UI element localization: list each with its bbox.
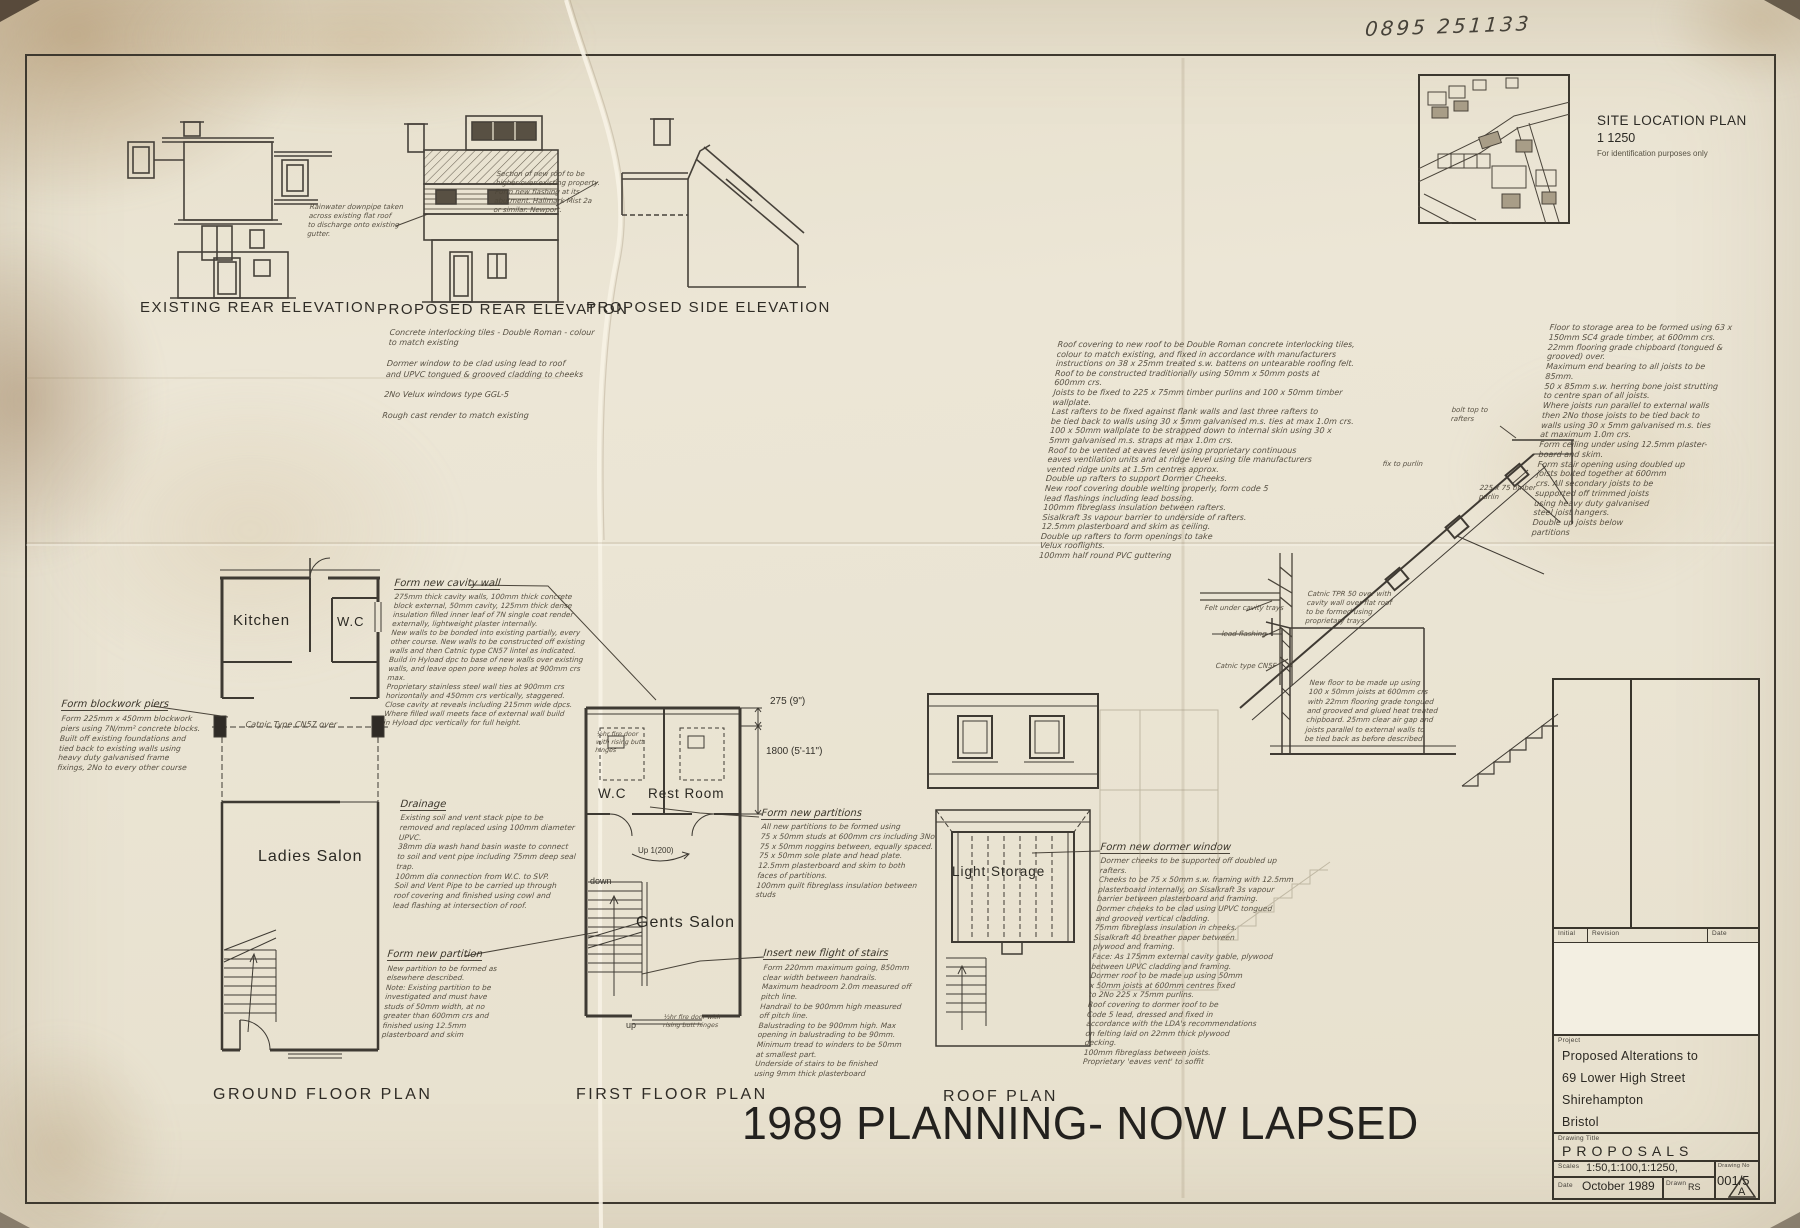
site-plan-title: SITE LOCATION PLAN: [1597, 113, 1747, 128]
date-value: October 1989: [1582, 1179, 1655, 1193]
drawing-title-label: Drawing Title: [1558, 1135, 1599, 1142]
blockwork-note-body: Form 225mm x 450mm blockwork piers using…: [57, 714, 217, 773]
project-line-4: Bristol: [1562, 1115, 1599, 1129]
ground-floor-plan-title: GROUND FLOOR PLAN: [213, 1086, 432, 1104]
title-block: Initial Revision Date Project Proposed A…: [1552, 678, 1760, 1200]
scales-value: 1:50,1:100,1:1250,: [1586, 1162, 1678, 1174]
title-block-divider: [1707, 927, 1708, 942]
fire-door-note-2: ½hr fire door with rising butt hinges: [663, 1014, 734, 1030]
project-line-3: Shirehampton: [1562, 1093, 1643, 1107]
drainage-note-body: Existing soil and vent stack pipe to be …: [392, 813, 581, 911]
title-block-divider: [1662, 1176, 1664, 1198]
svg-text:A: A: [1738, 1186, 1746, 1198]
title-block-divider: [1587, 927, 1588, 942]
proposed-rear-notes: Concrete interlocking tiles - Double Rom…: [382, 328, 660, 422]
title-block-blank-panel: [1554, 943, 1758, 1034]
blockwork-note-title: Form blockwork piers: [61, 699, 169, 711]
flashing-note: lead flashing: [1221, 630, 1297, 639]
room-label-ladies-salon: Ladies Salon: [258, 848, 363, 866]
drainage-note-title: Drainage: [400, 799, 447, 811]
stairs-note-title: Insert new flight of stairs: [763, 948, 889, 960]
room-label-light-storage: Light Storage: [952, 864, 1045, 879]
title-block-rule: [1554, 927, 1758, 929]
revision-triangle-icon: A: [1728, 1176, 1756, 1198]
room-label-wc-first: W.C: [598, 786, 627, 801]
cavity-wall-note-title: Form new cavity wall: [394, 578, 501, 590]
fire-door-note-1: ½hr fire door with rising butt hinges: [595, 731, 663, 756]
rainwater-note: Rainwater downpipe taken across existing…: [307, 203, 408, 239]
cavity-wall-note-body: 275mm thick cavity walls, 100mm thick co…: [383, 592, 595, 727]
site-plan-scale: 1 1250: [1597, 131, 1635, 145]
scales-label: Scales: [1558, 1163, 1579, 1170]
dim-room-height: 1800 (5'-11"): [766, 746, 822, 757]
project-label: Project: [1558, 1037, 1580, 1044]
proposed-side-elevation-title: PROPOSED SIDE ELEVATION: [586, 299, 831, 316]
revision-col-initial: Initial: [1558, 930, 1575, 937]
revision-col-revision: Revision: [1592, 930, 1619, 937]
planning-lapsed-overlay: 1989 PLANNING- NOW LAPSED: [742, 1096, 1419, 1150]
site-plan-note: For identification purposes only: [1597, 149, 1708, 158]
room-label-wc-ground: W.C: [337, 614, 365, 629]
partition-note-body: New partition to be formed as elsewhere …: [381, 964, 513, 1040]
partitions-note-title: Form new partitions: [761, 808, 862, 820]
room-label-gents-salon: Gents Salon: [636, 914, 735, 932]
lintel-note: Catnic Type CN57 over: [245, 720, 346, 730]
catnic-note: Catnic type CN5F: [1215, 662, 1301, 671]
partition-note-title: Form new partition: [387, 949, 483, 961]
felt-note: Felt under cavity trays: [1204, 604, 1295, 613]
new-floor-note: New floor to be made up using 100 x 50mm…: [1304, 678, 1490, 744]
fix-purlin-note: fix to purlin: [1382, 460, 1447, 469]
drawing-sheet: 0895 251133 SITE LOCATI: [0, 0, 1800, 1228]
bolt-note: bolt top to rafters: [1450, 406, 1534, 424]
dim-parapet: 275 (9"): [770, 696, 805, 707]
stair-up-label: up: [626, 1020, 636, 1030]
title-block-divider: [1714, 1160, 1716, 1198]
drawing-no-label: Drawing No: [1718, 1163, 1750, 1169]
proposed-side-elevation-drawing: [592, 115, 812, 295]
title-block-rule: [1554, 1176, 1714, 1178]
drawn-initials: RS: [1688, 1182, 1701, 1192]
drawing-title-value: PROPOSALS: [1562, 1143, 1693, 1159]
drawn-label: Drawn: [1666, 1180, 1686, 1187]
title-block-rule: [1554, 1132, 1758, 1134]
cavity-tray-note: Catnic TPR 50 over with cavity wall over…: [1305, 590, 1436, 626]
existing-rear-elevation-title: EXISTING REAR ELEVATION: [140, 299, 377, 316]
date-label: Date: [1558, 1182, 1573, 1189]
title-block-divider: [1630, 680, 1632, 927]
existing-rear-elevation-drawing: [122, 112, 337, 302]
project-line-2: 69 Lower High Street: [1562, 1071, 1685, 1085]
room-label-rest-room: Rest Room: [648, 786, 725, 801]
first-floor-plan-title: FIRST FLOOR PLAN: [576, 1086, 768, 1104]
ground-floor-plan-drawing: [192, 502, 404, 1077]
stair-up-going-label: Up 1(200): [638, 846, 674, 855]
purlin-note: 225 x 75 timber purlin: [1478, 484, 1570, 502]
project-line-1: Proposed Alterations to: [1562, 1049, 1698, 1063]
revision-col-date: Date: [1712, 930, 1727, 937]
room-label-kitchen: Kitchen: [233, 612, 290, 629]
site-location-map: [1418, 74, 1570, 224]
stair-down-label: down: [590, 876, 612, 886]
title-block-rule: [1554, 1034, 1758, 1036]
